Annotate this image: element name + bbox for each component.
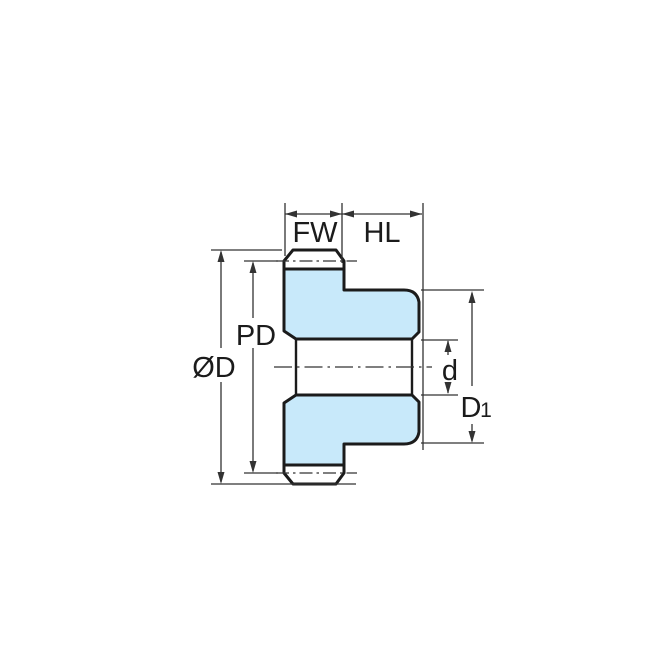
- od-label: ØD: [192, 352, 236, 384]
- bore-label: d: [442, 355, 458, 387]
- fw-label: FW: [292, 217, 338, 249]
- hub-label-main: D: [461, 392, 482, 424]
- hub-arrow-up-icon: [469, 291, 476, 303]
- hl-label: HL: [363, 217, 400, 249]
- od-arrow-down-icon: [218, 472, 225, 484]
- hl-arrow-right-icon: [410, 211, 422, 218]
- gear-drawing: FW HL ØD PD: [0, 0, 670, 670]
- technical-drawing-canvas: FW HL ØD PD: [0, 0, 670, 670]
- pd-dimension-group: PD: [236, 261, 278, 473]
- bore-arrow-up-icon: [445, 340, 452, 352]
- hub-label-subscript: 1: [480, 399, 492, 422]
- gear-tooth-bottom: [284, 465, 344, 484]
- od-arrow-up-icon: [218, 250, 225, 262]
- pd-arrow-down-icon: [250, 461, 257, 473]
- pd-arrow-up-icon: [250, 261, 257, 273]
- hl-arrow-left-icon: [342, 211, 354, 218]
- gear-tooth-top: [284, 250, 344, 269]
- gear-body-upper: [284, 269, 419, 339]
- gear-body-lower: [284, 395, 419, 465]
- pd-label: PD: [236, 320, 276, 352]
- hub-arrow-down-icon: [469, 431, 476, 443]
